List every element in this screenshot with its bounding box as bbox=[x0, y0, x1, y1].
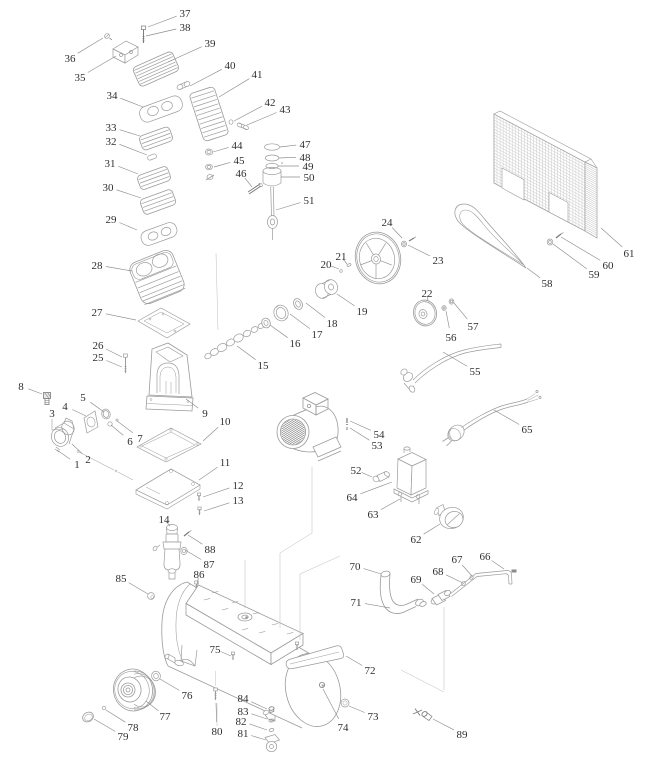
svg-text:54: 54 bbox=[374, 429, 386, 441]
svg-text:6: 6 bbox=[127, 436, 133, 448]
svg-text:13: 13 bbox=[233, 495, 245, 507]
svg-text:65: 65 bbox=[522, 424, 534, 436]
svg-text:88: 88 bbox=[205, 544, 217, 556]
svg-text:15: 15 bbox=[258, 360, 270, 372]
svg-text:27: 27 bbox=[92, 307, 104, 319]
svg-text:58: 58 bbox=[542, 278, 554, 290]
svg-text:45: 45 bbox=[234, 155, 246, 167]
svg-text:37: 37 bbox=[180, 8, 192, 20]
svg-text:1: 1 bbox=[74, 459, 80, 471]
svg-text:56: 56 bbox=[446, 332, 458, 344]
svg-text:68: 68 bbox=[433, 566, 445, 578]
svg-text:34: 34 bbox=[107, 90, 119, 102]
svg-text:8: 8 bbox=[18, 381, 24, 393]
svg-text:21: 21 bbox=[336, 251, 347, 263]
svg-text:41: 41 bbox=[252, 69, 263, 81]
svg-text:31: 31 bbox=[105, 158, 116, 170]
svg-text:9: 9 bbox=[202, 408, 208, 420]
svg-text:59: 59 bbox=[589, 269, 601, 281]
svg-text:19: 19 bbox=[357, 306, 369, 318]
svg-text:73: 73 bbox=[368, 711, 380, 723]
svg-text:33: 33 bbox=[106, 122, 118, 134]
svg-text:17: 17 bbox=[312, 329, 324, 341]
svg-text:38: 38 bbox=[180, 22, 192, 34]
svg-text:24: 24 bbox=[382, 217, 394, 229]
svg-text:64: 64 bbox=[347, 492, 359, 504]
svg-text:77: 77 bbox=[160, 711, 172, 723]
svg-text:87: 87 bbox=[204, 559, 216, 571]
svg-text:12: 12 bbox=[233, 480, 244, 492]
svg-text:40: 40 bbox=[225, 60, 237, 72]
svg-text:57: 57 bbox=[468, 321, 480, 333]
svg-text:32: 32 bbox=[106, 136, 117, 148]
svg-text:51: 51 bbox=[304, 195, 315, 207]
svg-text:62: 62 bbox=[411, 534, 422, 546]
svg-text:46: 46 bbox=[236, 168, 248, 180]
svg-text:4: 4 bbox=[62, 401, 68, 413]
svg-text:22: 22 bbox=[422, 288, 433, 300]
svg-text:80: 80 bbox=[212, 726, 224, 738]
svg-text:71: 71 bbox=[351, 597, 362, 609]
svg-text:72: 72 bbox=[365, 665, 376, 677]
svg-text:85: 85 bbox=[116, 573, 128, 585]
svg-text:67: 67 bbox=[452, 554, 464, 566]
svg-text:11: 11 bbox=[220, 457, 231, 469]
svg-text:28: 28 bbox=[92, 260, 104, 272]
svg-text:81: 81 bbox=[238, 728, 249, 740]
svg-text:66: 66 bbox=[480, 551, 492, 563]
svg-text:25: 25 bbox=[93, 352, 105, 364]
svg-text:5: 5 bbox=[80, 392, 86, 404]
svg-text:43: 43 bbox=[280, 104, 292, 116]
svg-text:30: 30 bbox=[103, 182, 115, 194]
svg-text:36: 36 bbox=[65, 53, 77, 65]
svg-text:35: 35 bbox=[75, 72, 87, 84]
svg-text:74: 74 bbox=[338, 722, 350, 734]
svg-text:53: 53 bbox=[372, 440, 384, 452]
svg-text:79: 79 bbox=[118, 731, 130, 743]
svg-text:52: 52 bbox=[351, 465, 362, 477]
svg-text:70: 70 bbox=[350, 561, 362, 573]
svg-text:2: 2 bbox=[85, 454, 91, 466]
svg-text:84: 84 bbox=[238, 693, 250, 705]
svg-text:50: 50 bbox=[304, 172, 316, 184]
svg-text:44: 44 bbox=[232, 140, 244, 152]
svg-text:20: 20 bbox=[321, 259, 333, 271]
svg-text:14: 14 bbox=[159, 514, 171, 526]
svg-text:89: 89 bbox=[457, 729, 469, 741]
svg-text:42: 42 bbox=[265, 97, 276, 109]
svg-text:18: 18 bbox=[327, 318, 339, 330]
svg-text:26: 26 bbox=[93, 340, 105, 352]
svg-text:39: 39 bbox=[205, 38, 217, 50]
svg-text:61: 61 bbox=[624, 248, 635, 260]
svg-text:69: 69 bbox=[411, 574, 423, 586]
svg-text:3: 3 bbox=[49, 408, 55, 420]
svg-text:23: 23 bbox=[433, 255, 445, 267]
svg-text:60: 60 bbox=[603, 260, 615, 272]
svg-text:7: 7 bbox=[137, 433, 143, 445]
svg-text:63: 63 bbox=[368, 509, 380, 521]
svg-text:78: 78 bbox=[128, 722, 140, 734]
svg-text:47: 47 bbox=[300, 139, 312, 151]
svg-text:83: 83 bbox=[238, 706, 250, 718]
svg-text:76: 76 bbox=[182, 690, 194, 702]
svg-text:29: 29 bbox=[106, 214, 118, 226]
svg-text:10: 10 bbox=[220, 416, 232, 428]
svg-text:16: 16 bbox=[290, 338, 302, 350]
svg-text:55: 55 bbox=[470, 366, 482, 378]
svg-text:75: 75 bbox=[210, 644, 222, 656]
